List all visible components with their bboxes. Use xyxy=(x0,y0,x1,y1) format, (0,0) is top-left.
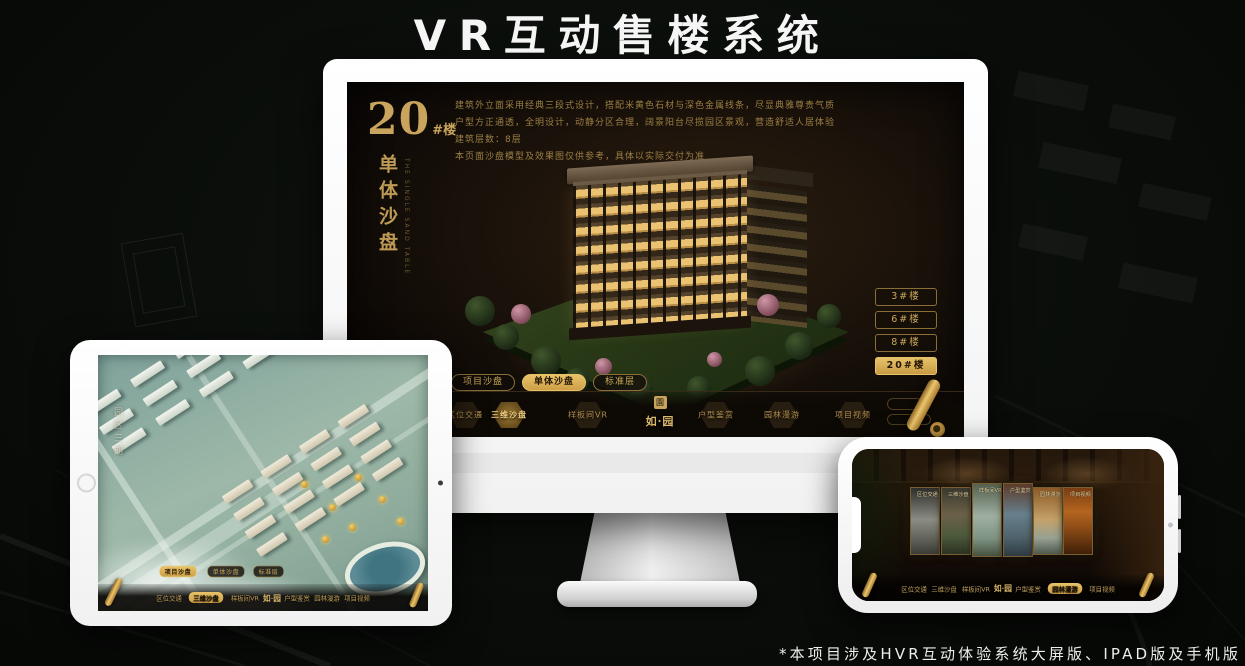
nav-item-floorplan[interactable]: 户型鉴赏 xyxy=(284,593,310,603)
screen-subtitle-en: THE SINGLE SAND TABLE xyxy=(403,158,410,275)
tab-standard-floor[interactable]: 标准层 xyxy=(253,566,284,577)
panel-floorplan[interactable]: 户型鉴赏 xyxy=(1003,483,1033,557)
nav-item-3d-sandbox[interactable]: 三维沙盘 xyxy=(477,400,541,430)
panel-label: 三维沙盘 xyxy=(948,490,964,498)
nav-item-garden-tour[interactable]: 园林漫游 xyxy=(1048,583,1083,594)
panel-showroom-vr[interactable]: 样板间VR xyxy=(972,483,1002,557)
tab-standard-floor[interactable]: 标准层 xyxy=(593,374,647,391)
screen-title-vertical: 单体沙盘 xyxy=(374,154,401,258)
panel-label: 区位交通 xyxy=(917,490,933,498)
nav-item-label: 样板间VR xyxy=(556,410,620,421)
nav-item-showroom-vr[interactable]: 样板间VR xyxy=(231,593,259,603)
panel-location-traffic[interactable]: 区位交通 xyxy=(910,487,940,555)
panel-3d-sandbox[interactable]: 三维沙盘 xyxy=(941,487,971,555)
tab-project-sandbox[interactable]: 项目沙盘 xyxy=(159,566,196,577)
nav-item-showroom-vr[interactable]: 样板间VR xyxy=(962,583,990,593)
nav-item-garden-tour[interactable]: 园林漫游 xyxy=(314,593,340,603)
seal-icon: 園 xyxy=(654,396,667,409)
floor-button-3[interactable]: 3#楼 xyxy=(875,288,937,306)
brand-logo: 如·园 xyxy=(994,582,1012,593)
nav-item-garden-tour[interactable]: 园林漫游 xyxy=(750,400,814,430)
page: VR互动售楼系统 20#楼 单体沙盘 THE SINGLE SAND TABLE… xyxy=(0,0,1245,666)
phone-screen: 区位交通 三维沙盘 样板间VR 户型鉴赏 园林漫游 项目视频 区位交通 三维沙盘… xyxy=(852,449,1164,601)
tab-single-sandbox[interactable]: 单体沙盘 xyxy=(207,566,244,577)
panel-garden-tour[interactable]: 园林漫游 xyxy=(1033,487,1063,555)
tablet-view-tab-bar: 项目沙盘 单体沙盘 标准层 xyxy=(154,562,287,581)
nav-item-project-video[interactable]: 项目视频 xyxy=(1089,583,1115,593)
floor-button-6[interactable]: 6#楼 xyxy=(875,311,937,329)
building-model xyxy=(573,176,823,346)
nav-item-project-video[interactable]: 项目视频 xyxy=(821,400,885,430)
nav-item-floorplan[interactable]: 户型鉴赏 xyxy=(1015,583,1041,593)
building-number-value: 20 xyxy=(367,94,430,145)
description-line: 建筑外立面采用经典三段式设计，搭配米黄色石材与深色金属线条，尽显典雅尊贵气质 xyxy=(455,98,925,115)
nav-item-floorplan[interactable]: 户型鉴赏 xyxy=(684,400,748,430)
nav-item-label: 项目视频 xyxy=(821,410,885,421)
nav-item-3d-sandbox[interactable]: 三维沙盘 xyxy=(189,592,224,603)
area-label: 园区三期 xyxy=(111,407,124,459)
floor-button-8[interactable]: 8#楼 xyxy=(875,334,937,352)
panel-label: 户型鉴赏 xyxy=(1010,486,1026,494)
panel-label: 样板间VR xyxy=(979,486,995,494)
building-number: 20#楼 xyxy=(367,94,456,145)
nav-item-3d-sandbox[interactable]: 三维沙盘 xyxy=(931,583,957,593)
building-number-unit: #楼 xyxy=(432,123,456,138)
phone-notch xyxy=(852,497,861,553)
scroll-handle-icon[interactable] xyxy=(887,380,959,436)
power-button-icon xyxy=(1178,495,1181,519)
tablet-nav-bar: 区位交通 三维沙盘 样板间VR 如·园 户型鉴赏 园林漫游 项目视频 xyxy=(98,584,428,611)
footnote: *本项目涉及HVR互动体验系统大屏版、IPAD版及手机版 xyxy=(779,643,1241,664)
brand-logo: 如·园 xyxy=(263,592,281,603)
monitor-stand xyxy=(580,513,740,583)
phone-nav-bar: 区位交通 三维沙盘 样板间VR 如·园 户型鉴赏 园林漫游 项目视频 xyxy=(852,575,1164,601)
nav-item-showroom-vr[interactable]: 样板间VR xyxy=(556,400,620,430)
page-title: VR互动售楼系统 xyxy=(0,2,1245,63)
tablet-frame: 园区三期 项目沙盘 单体沙盘 标准层 区位交通 三维沙盘 样板间VR 如·园 户… xyxy=(70,340,452,626)
nav-item-label: 园林漫游 xyxy=(750,410,814,421)
camera-icon xyxy=(438,481,443,486)
tab-project-sandbox[interactable]: 项目沙盘 xyxy=(451,374,515,391)
volume-button-icon xyxy=(1178,529,1181,553)
nav-item-label: 三维沙盘 xyxy=(477,410,541,421)
floor-button-20[interactable]: 20#楼 xyxy=(875,357,937,375)
view-tab-bar: 项目沙盘 单体沙盘 标准层 xyxy=(451,374,647,391)
brand-logo-text: 如·园 xyxy=(646,415,675,428)
tablet-screen: 园区三期 项目沙盘 单体沙盘 标准层 区位交通 三维沙盘 样板间VR 如·园 户… xyxy=(98,355,428,611)
monitor-stand-base xyxy=(557,581,757,607)
nav-item-location-traffic[interactable]: 区位交通 xyxy=(901,583,927,593)
brand-logo: 園 如·园 xyxy=(632,396,688,429)
nav-item-label: 户型鉴赏 xyxy=(684,410,748,421)
floor-button-group: 3#楼 6#楼 8#楼 20#楼 xyxy=(875,288,937,375)
building-blocks xyxy=(222,393,421,557)
camera-icon xyxy=(1168,523,1173,528)
phone-frame: 区位交通 三维沙盘 样板间VR 户型鉴赏 园林漫游 项目视频 区位交通 三维沙盘… xyxy=(838,437,1178,613)
tab-single-sandbox[interactable]: 单体沙盘 xyxy=(522,374,586,391)
home-button-icon xyxy=(77,474,96,493)
nav-item-location-traffic[interactable]: 区位交通 xyxy=(156,593,182,603)
panel-label: 项目视频 xyxy=(1070,490,1086,498)
building-blocks xyxy=(98,355,298,454)
panel-project-video[interactable]: 项目视频 xyxy=(1063,487,1093,555)
description-line: 户型方正通透，全明设计，动静分区合理，阔景阳台尽揽园区景观，营造舒适人居体验 xyxy=(455,115,925,132)
nav-item-project-video[interactable]: 项目视频 xyxy=(344,593,370,603)
panel-label: 园林漫游 xyxy=(1040,490,1056,498)
